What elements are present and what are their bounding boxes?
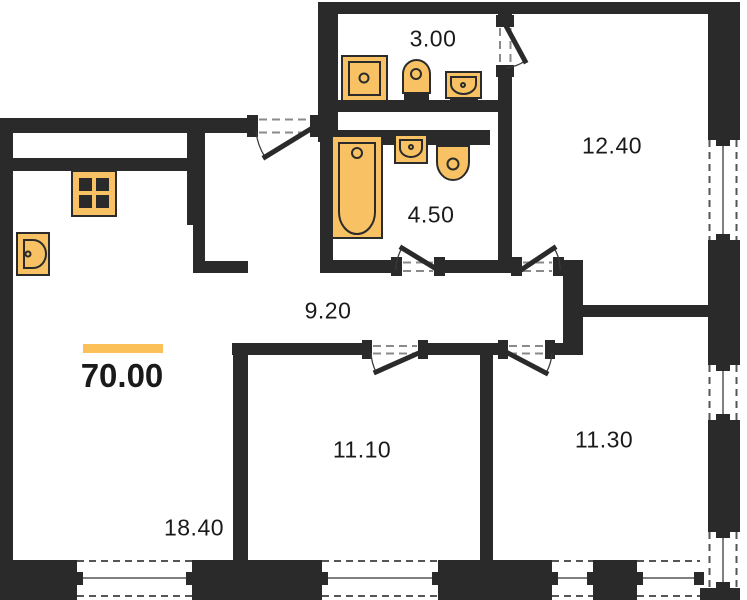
- window: [710, 530, 737, 590]
- wall-segment: [193, 225, 205, 273]
- wall-segment: [232, 343, 367, 355]
- window: [710, 363, 737, 422]
- wall-segment: [233, 343, 248, 560]
- wall-segment: [438, 560, 552, 600]
- door-jamb: [362, 340, 372, 359]
- wall-segment: [583, 305, 708, 317]
- bathtub-icon: [332, 136, 382, 238]
- wall-segment: [498, 2, 512, 17]
- door-bathroom: [396, 248, 438, 271]
- wall-segment: [498, 75, 512, 273]
- room-area-bottom-mid: 11.10: [333, 437, 391, 464]
- window: [633, 561, 704, 596]
- floor-plan-drawing: [0, 0, 747, 600]
- room-area-bottom-right: 11.30: [575, 427, 633, 454]
- washing-machine-icon: [342, 56, 387, 101]
- total-area-accent-bar: [83, 344, 163, 353]
- wall-segment: [320, 2, 740, 14]
- wall-segment: [0, 118, 13, 600]
- window: [73, 561, 196, 596]
- room-area-bathroom: 4.50: [408, 202, 455, 229]
- fixtures: [17, 56, 481, 275]
- wall-segment: [187, 118, 205, 225]
- toilet-icon: [403, 60, 430, 102]
- door-room-bottom-middle: [371, 346, 421, 372]
- wall-segment: [318, 2, 338, 142]
- wall-segment: [550, 343, 583, 355]
- kitchen-sink-icon: [17, 233, 49, 275]
- room-area-living: 18.40: [164, 515, 224, 542]
- total-area-label: 70.00: [81, 357, 164, 395]
- stove-icon: [72, 163, 116, 216]
- window: [548, 561, 597, 596]
- room-area-top-right: 12.40: [582, 133, 642, 160]
- window: [710, 138, 737, 242]
- wall-segment: [708, 2, 740, 140]
- hand-basin-icon: [395, 135, 427, 163]
- window: [318, 561, 442, 596]
- room-area-wc: 3.00: [410, 26, 457, 53]
- wall-segment: [0, 118, 253, 133]
- wall-segment: [480, 353, 493, 560]
- room-area-hallway: 9.20: [305, 298, 352, 325]
- hand-basin-icon: [446, 72, 481, 102]
- wall-segment: [205, 261, 248, 273]
- entrance-door: [256, 120, 314, 158]
- wall-segment: [440, 260, 498, 273]
- wall-segment: [192, 560, 322, 600]
- floor-plan: 70.00 3.00 4.50 12.40 9.20 18.40 11.10 1…: [0, 0, 747, 600]
- wall-segment: [320, 260, 397, 273]
- door-wc-to-room: [500, 24, 525, 68]
- wall-segment: [708, 240, 740, 365]
- wall-segment: [708, 420, 740, 532]
- wall-segment: [593, 560, 637, 600]
- wall-segment: [563, 262, 583, 348]
